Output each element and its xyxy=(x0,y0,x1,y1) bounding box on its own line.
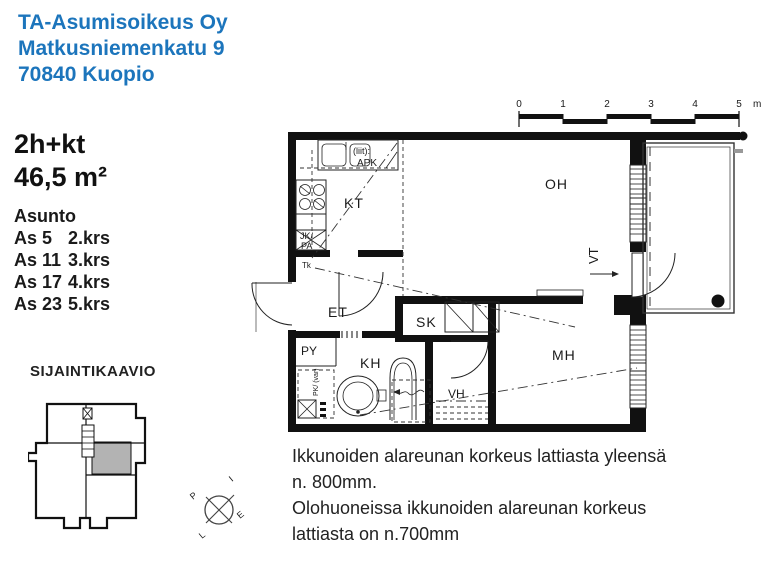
compass-letter-north: P xyxy=(188,490,199,502)
arrow-icon xyxy=(612,271,619,277)
scale-tick-label-2: 2 xyxy=(604,99,610,110)
entrance-door xyxy=(252,283,292,325)
room-label-kh: KH xyxy=(360,355,381,371)
compass-icon: P I E L xyxy=(188,474,246,540)
apartment-info: 2h+kt 46,5 m² Asunto As 5 2.krs As 11 3.… xyxy=(14,128,110,315)
notes: Ikkunoiden alareunan korkeus lattiasta y… xyxy=(292,443,762,547)
scale-tick-label-1: 1 xyxy=(560,99,566,110)
label-vt: VT xyxy=(586,247,601,264)
apartment-type: 2h+kt xyxy=(14,128,110,161)
unit-number: As 11 xyxy=(14,249,68,271)
label-jk: JK/ xyxy=(300,231,314,241)
scale-bar: 0 1 2 3 4 5 m xyxy=(516,99,761,127)
note-line-2: n. 800mm. xyxy=(292,469,762,495)
balcony-column-dot xyxy=(712,295,725,308)
unit-row: As 11 3.krs xyxy=(14,249,110,271)
unit-row: As 17 4.krs xyxy=(14,271,110,293)
washbasin-icon xyxy=(337,376,386,416)
balcony-rail-tick xyxy=(734,149,743,153)
wall-end-dot xyxy=(739,132,748,141)
floor-drain-icon xyxy=(298,400,326,418)
unit-list-heading: Asunto xyxy=(14,205,110,227)
unit-floor: 4.krs xyxy=(68,271,110,293)
postal-city: 70840 Kuopio xyxy=(18,62,228,88)
closet-room-door xyxy=(451,341,488,378)
scale-tick-label-5: 5 xyxy=(736,99,742,110)
room-label-sk: SK xyxy=(416,314,437,330)
doors xyxy=(252,253,675,378)
note-line-1: Ikkunoiden alareunan korkeus lattiasta y… xyxy=(292,443,762,469)
wardrobe-lines xyxy=(436,401,488,419)
note-line-3: Olohuoneissa ikkunoiden alareunan korkeu… xyxy=(292,495,762,521)
unit-number: As 17 xyxy=(14,271,68,293)
floor-plan: 0 1 2 3 4 5 m xyxy=(240,90,768,440)
label-py-note: PK/ (var) xyxy=(313,368,320,396)
unit-floor: 5.krs xyxy=(68,293,110,315)
room-label-mh: MH xyxy=(552,347,576,363)
label-apk: APK xyxy=(357,158,377,169)
unit-number: As 5 xyxy=(14,227,68,249)
scale-tick-label-0: 0 xyxy=(516,99,522,110)
balcony-door xyxy=(631,253,675,297)
stove-icon xyxy=(296,180,326,214)
scale-unit-label: m xyxy=(753,99,761,110)
room-label-py: PY xyxy=(301,344,317,358)
compass: P I E L xyxy=(186,471,260,545)
note-line-4: lattiasta on n.700mm xyxy=(292,521,762,547)
room-label-oh: OH xyxy=(545,176,568,192)
unit-floor: 3.krs xyxy=(68,249,110,271)
company-name: TA-Asumisoikeus Oy xyxy=(18,10,228,36)
room-label-kt: KT xyxy=(344,195,364,211)
shower-area xyxy=(392,380,430,422)
escape-route xyxy=(590,271,619,277)
unit-row: As 23 5.krs xyxy=(14,293,110,315)
scale-tick-label-4: 4 xyxy=(692,99,698,110)
room-labels: KT OH ET SK KH PY VH MH VT Tk JK/ PA (li… xyxy=(300,146,601,401)
compass-letter-west: L xyxy=(197,530,207,541)
street-address: Matkusniemenkatu 9 xyxy=(18,36,228,62)
compass-letter-east: I xyxy=(227,474,235,483)
highlighted-apartment xyxy=(92,442,131,474)
label-pa: PA xyxy=(301,241,312,251)
label-apk-note: (liit): xyxy=(353,146,370,156)
unit-row: As 5 2.krs xyxy=(14,227,110,249)
counter-unit xyxy=(296,214,326,230)
stairwell-icon xyxy=(82,408,94,457)
location-diagram xyxy=(28,395,180,555)
building-outline xyxy=(28,404,145,528)
location-diagram-title: SIJAINTIKAAVIO xyxy=(30,363,156,380)
label-tk: Tk xyxy=(302,261,312,270)
room-label-vh: VH xyxy=(448,387,465,401)
compass-letter-south: E xyxy=(235,509,246,521)
scale-tick-label-3: 3 xyxy=(648,99,654,110)
walls xyxy=(256,132,748,433)
header-block: TA-Asumisoikeus Oy Matkusniemenkatu 9 70… xyxy=(18,10,228,88)
floor-plan-page: TA-Asumisoikeus Oy Matkusniemenkatu 9 70… xyxy=(0,0,768,576)
apartment-area: 46,5 m² xyxy=(14,161,110,194)
toilet-icon xyxy=(390,358,416,420)
unit-number: As 23 xyxy=(14,293,68,315)
room-label-et: ET xyxy=(328,304,348,320)
unit-floor: 2.krs xyxy=(68,227,110,249)
bedroom-window xyxy=(630,325,646,408)
cabinet-outline xyxy=(537,290,583,296)
